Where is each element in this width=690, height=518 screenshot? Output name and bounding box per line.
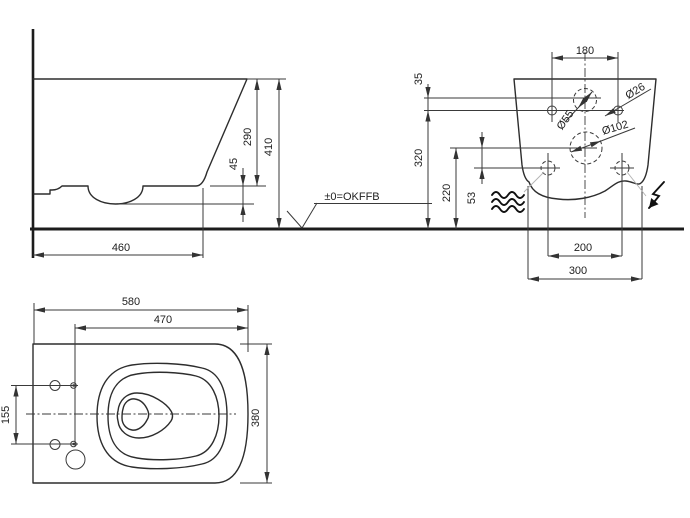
dim-text-fixing-height: 320 [413, 149, 425, 167]
drain-funnel-outer [117, 393, 172, 438]
dia-text-fixing: Ø26 [623, 81, 647, 102]
dim-text-depth: 460 [112, 242, 130, 254]
rear-view: 180 35 320 220 53 200 300 Ø55 Ø26 Ø102 [413, 45, 664, 279]
leader-drain-dia [571, 141, 601, 152]
water-supply-icon [492, 192, 524, 212]
dim-text-rim-height: 290 [242, 128, 254, 146]
drawing-canvas: 460 45 290 410 ±0=OKFFB [0, 0, 690, 518]
wave-line [492, 199, 524, 205]
toilet-side-outline [33, 79, 247, 204]
dim-text-length: 580 [122, 296, 140, 308]
dim-text-supply-offset: 35 [413, 73, 425, 85]
side-view: 460 45 290 410 [33, 79, 286, 258]
leader-water [524, 172, 544, 192]
floor-datum: ±0=OKFFB [287, 191, 432, 228]
wave-line [492, 192, 524, 198]
dia-text-drain: Ø102 [601, 119, 630, 138]
dim-text-hole-spacing: 180 [576, 45, 594, 57]
dim-text-drain-height: 220 [441, 184, 453, 202]
dim-text-lower-offset: 53 [466, 192, 478, 204]
seat-outer-outline [97, 363, 227, 468]
dim-text-outer-spacing: 300 [569, 265, 587, 277]
dia-text-supply: Ø55 [555, 108, 577, 132]
dim-text-seat-holes-to-front: 470 [154, 314, 172, 326]
top-view: 580 470 380 155 [0, 296, 272, 483]
bowl-inner-outline [108, 372, 219, 459]
dim-text-width: 380 [250, 409, 262, 427]
electrical-connection-icon [649, 182, 664, 208]
flush-hole [66, 450, 85, 469]
dim-text-rim-drop: 45 [228, 158, 240, 170]
datum-check-icon [287, 203, 317, 228]
dim-text-seat-hole-spacing: 155 [0, 406, 12, 424]
wave-line [492, 206, 524, 212]
drain-funnel-inner [122, 399, 149, 430]
datum-label: ±0=OKFFB [324, 191, 379, 203]
technical-drawing: 460 45 290 410 ±0=OKFFB [0, 0, 690, 518]
dim-text-lower-spacing: 200 [574, 242, 592, 254]
lightning-arrow [649, 201, 655, 208]
toilet-top-outline [33, 344, 248, 483]
leader-electric [627, 172, 646, 196]
dim-text-total-height: 410 [263, 138, 275, 156]
